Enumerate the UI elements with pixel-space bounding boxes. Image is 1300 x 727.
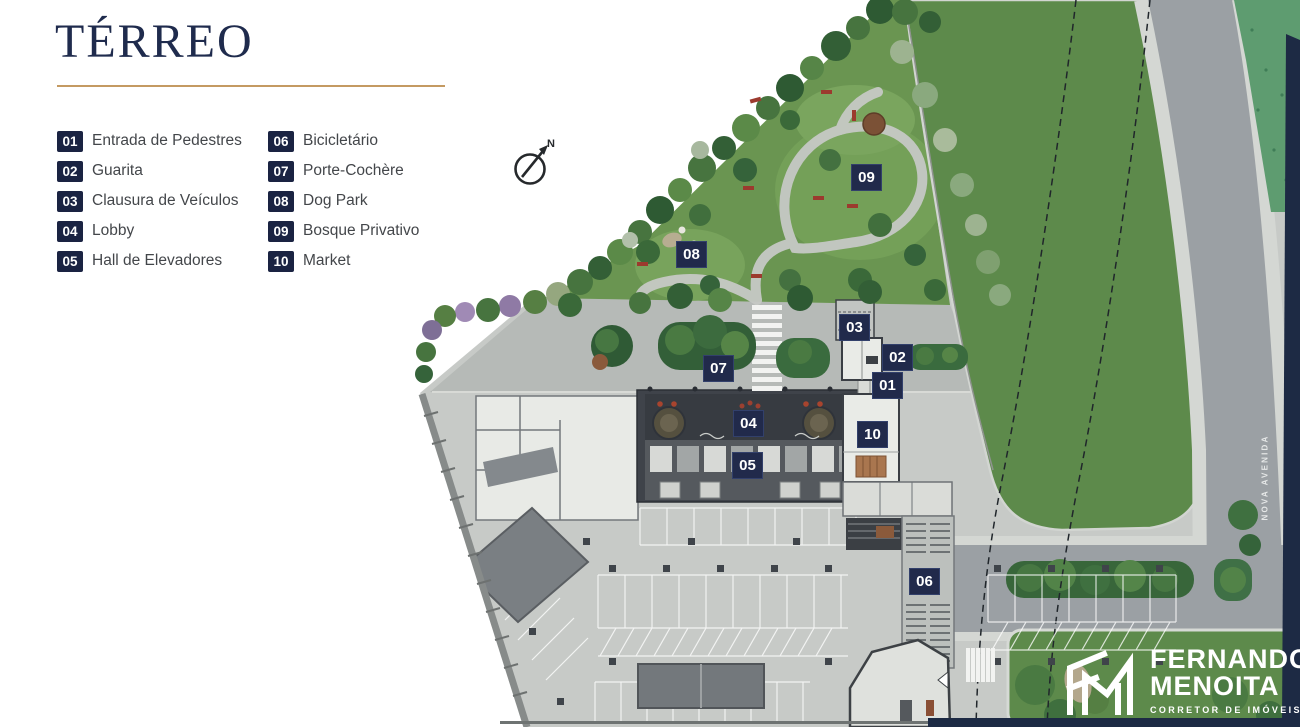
legend-label: Dog Park xyxy=(303,192,368,210)
legend-item-04: 04 Lobby xyxy=(57,220,257,242)
legend-number-badge: 04 xyxy=(57,221,83,242)
legend-number-badge: 01 xyxy=(57,131,83,152)
street-label-nova-avenida: NOVA AVENIDA xyxy=(1261,413,1274,543)
title-underline xyxy=(57,85,445,87)
legend-label: Market xyxy=(303,252,350,270)
south-curb xyxy=(500,721,928,724)
legend-item-08: 08 Dog Park xyxy=(268,190,468,212)
brand-monogram-icon xyxy=(1062,646,1140,716)
legend-label: Guarita xyxy=(92,162,143,180)
legend-number-badge: 10 xyxy=(268,251,294,272)
legend-number-badge: 08 xyxy=(268,191,294,212)
legend-label: Lobby xyxy=(92,222,134,240)
plan-marker-03: 03 xyxy=(839,314,870,341)
terreo-floorplan-page: N NOVA AVENIDA 01 02 03 04 05 06 07 08 0… xyxy=(0,0,1300,727)
legend-number-badge: 09 xyxy=(268,221,294,242)
legend-label: Clausura de Veículos xyxy=(92,192,238,210)
legend-number-badge: 06 xyxy=(268,131,294,152)
plan-marker-08: 08 xyxy=(676,241,707,268)
legend-item-01: 01 Entrada de Pedestres xyxy=(57,130,257,152)
site-plan-illustration: N xyxy=(0,0,1300,727)
legend-label: Entrada de Pedestres xyxy=(92,132,242,150)
legend-item-02: 02 Guarita xyxy=(57,160,257,182)
brand-name-line1: FERNANDO xyxy=(1150,646,1300,673)
plan-marker-05: 05 xyxy=(732,452,763,479)
legend-column-2: 06 Bicicletário 07 Porte-Cochère 08 Dog … xyxy=(268,130,468,280)
legend-item-05: 05 Hall de Elevadores xyxy=(57,250,257,272)
legend-column-1: 01 Entrada de Pedestres 02 Guarita 03 Cl… xyxy=(57,130,257,280)
legend-item-06: 06 Bicicletário xyxy=(268,130,468,152)
brand-tagline: CORRETOR DE IMÓVEIS xyxy=(1150,705,1300,715)
brand-name-line2: MENOITA xyxy=(1150,673,1300,700)
legend-number-badge: 05 xyxy=(57,251,83,272)
plan-marker-09: 09 xyxy=(851,164,882,191)
legend-label: Porte-Cochère xyxy=(303,162,404,180)
legend-label: Hall de Elevadores xyxy=(92,252,222,270)
plan-marker-04: 04 xyxy=(733,410,764,437)
plan-marker-02: 02 xyxy=(882,344,913,371)
plan-marker-07: 07 xyxy=(703,355,734,382)
legend-label: Bicicletário xyxy=(303,132,378,150)
legend-number-badge: 02 xyxy=(57,161,83,182)
plan-marker-10: 10 xyxy=(857,421,888,448)
plan-marker-06: 06 xyxy=(909,568,940,595)
plan-marker-01: 01 xyxy=(872,372,903,399)
legend-item-10: 10 Market xyxy=(268,250,468,272)
brand-logo-text: FERNANDO MENOITA CORRETOR DE IMÓVEIS xyxy=(1150,646,1300,715)
brand-logo: FERNANDO MENOITA CORRETOR DE IMÓVEIS xyxy=(1062,646,1300,716)
legend-number-badge: 07 xyxy=(268,161,294,182)
legend-number-badge: 03 xyxy=(57,191,83,212)
parking-ramp xyxy=(638,664,764,708)
legend-item-09: 09 Bosque Privativo xyxy=(268,220,468,242)
legend-item-03: 03 Clausura de Veículos xyxy=(57,190,257,212)
legend-label: Bosque Privativo xyxy=(303,222,419,240)
legend-item-07: 07 Porte-Cochère xyxy=(268,160,468,182)
svg-text:N: N xyxy=(547,138,555,150)
page-title: TÉRREO xyxy=(55,14,254,69)
